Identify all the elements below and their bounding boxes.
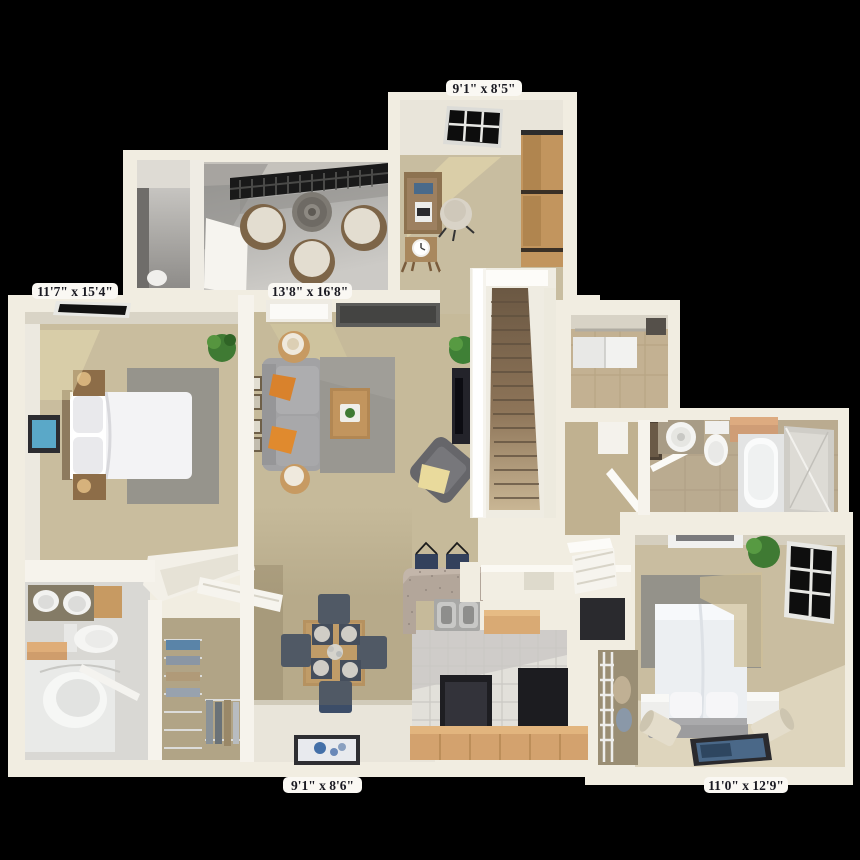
svg-text:9'1" x 8'5": 9'1" x 8'5" bbox=[453, 81, 516, 96]
svg-text:11'7" x 15'4": 11'7" x 15'4" bbox=[37, 284, 113, 299]
svg-text:11'0" x 12'9": 11'0" x 12'9" bbox=[708, 778, 784, 793]
svg-text:9'1" x 8'6": 9'1" x 8'6" bbox=[291, 778, 354, 793]
svg-text:13'8" x 16'8": 13'8" x 16'8" bbox=[272, 284, 349, 299]
